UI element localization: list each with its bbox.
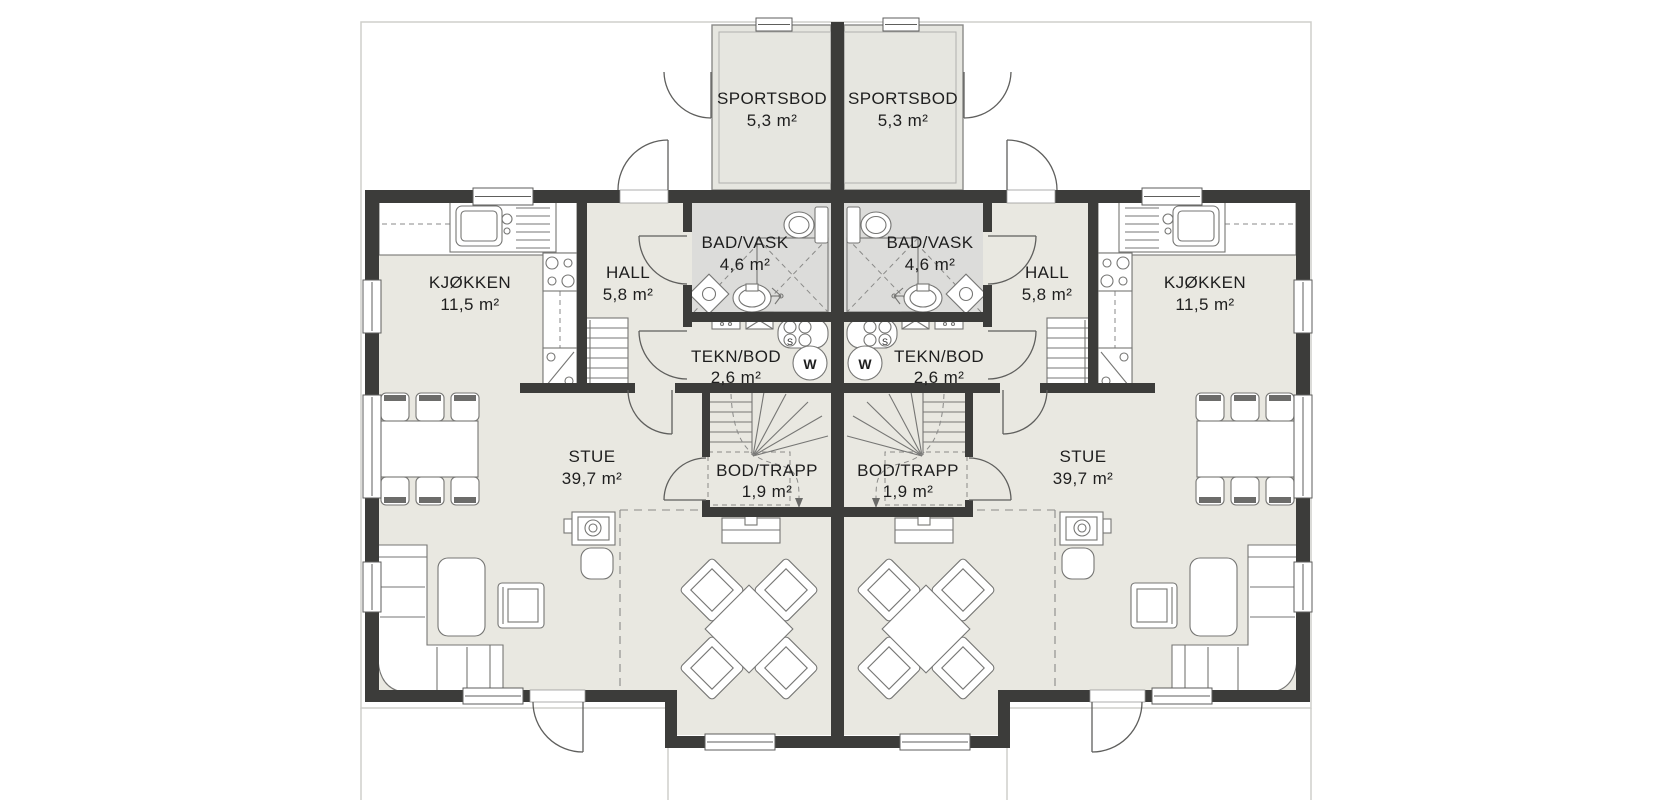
room-area-kjokken-right: 11,5 m² xyxy=(1175,295,1234,314)
drain-label-right: S xyxy=(882,337,888,347)
hall-wardrobe xyxy=(585,318,628,392)
room-label-kjokken-left: KJØKKEN xyxy=(429,273,511,292)
room-area-stue-left: 39,7 m² xyxy=(562,469,622,488)
room-label-hall-right: HALL xyxy=(1025,263,1069,282)
toilet xyxy=(815,207,828,243)
room-label-teknbod-left: TEKN/BOD xyxy=(691,347,781,366)
room-area-hall-right: 5,8 m² xyxy=(1022,285,1073,304)
room-area-bodtrapp-left: 1,9 m² xyxy=(742,482,793,501)
drain-label-left: S xyxy=(787,337,793,347)
room-label-bodtrapp-right: BOD/TRAPP xyxy=(857,461,959,480)
room-label-badvask-left: BAD/VASK xyxy=(702,233,789,252)
room-label-stue-left: STUE xyxy=(569,447,616,466)
room-area-teknbod-left: 2,6 m² xyxy=(711,368,762,387)
armchair xyxy=(498,583,544,628)
room-area-bodtrapp-right: 1,9 m² xyxy=(883,482,934,501)
room-area-kjokken-left: 11,5 m² xyxy=(440,295,499,314)
room-label-badvask-right: BAD/VASK xyxy=(887,233,974,252)
room-label-sportsbod-right: SPORTSBOD xyxy=(848,89,958,108)
room-area-stue-right: 39,7 m² xyxy=(1053,469,1113,488)
washer-label-right: W xyxy=(858,356,872,372)
patio-door xyxy=(533,702,583,752)
dining-set xyxy=(378,393,479,505)
room-label-hall-left: HALL xyxy=(606,263,650,282)
party-wall xyxy=(831,22,844,748)
room-area-badvask-left: 4,6 m² xyxy=(720,255,771,274)
room-area-sportsbod-left: 5,3 m² xyxy=(747,111,798,130)
sportsbod-door xyxy=(664,72,711,118)
entry-door xyxy=(618,140,668,190)
floor-plan-page: KJØKKEN 11,5 m² HALL 5,8 m² BAD/VASK 4,6… xyxy=(0,0,1670,800)
room-area-sportsbod-right: 5,3 m² xyxy=(878,111,929,130)
coffee-table xyxy=(438,558,485,636)
floor-plan-drawing: KJØKKEN 11,5 m² HALL 5,8 m² BAD/VASK 4,6… xyxy=(0,0,1670,800)
room-label-teknbod-right: TEKN/BOD xyxy=(894,347,984,366)
wood-basket xyxy=(581,548,613,579)
room-label-stue-right: STUE xyxy=(1060,447,1107,466)
room-label-sportsbod-left: SPORTSBOD xyxy=(717,89,827,108)
room-label-bodtrapp-left: BOD/TRAPP xyxy=(716,461,818,480)
washer-label-left: W xyxy=(803,356,817,372)
room-area-badvask-right: 4,6 m² xyxy=(905,255,956,274)
room-area-hall-left: 5,8 m² xyxy=(603,285,654,304)
room-area-teknbod-right: 2,6 m² xyxy=(914,368,965,387)
room-label-kjokken-right: KJØKKEN xyxy=(1164,273,1246,292)
dining-table xyxy=(378,421,478,477)
sideboard xyxy=(722,515,780,543)
